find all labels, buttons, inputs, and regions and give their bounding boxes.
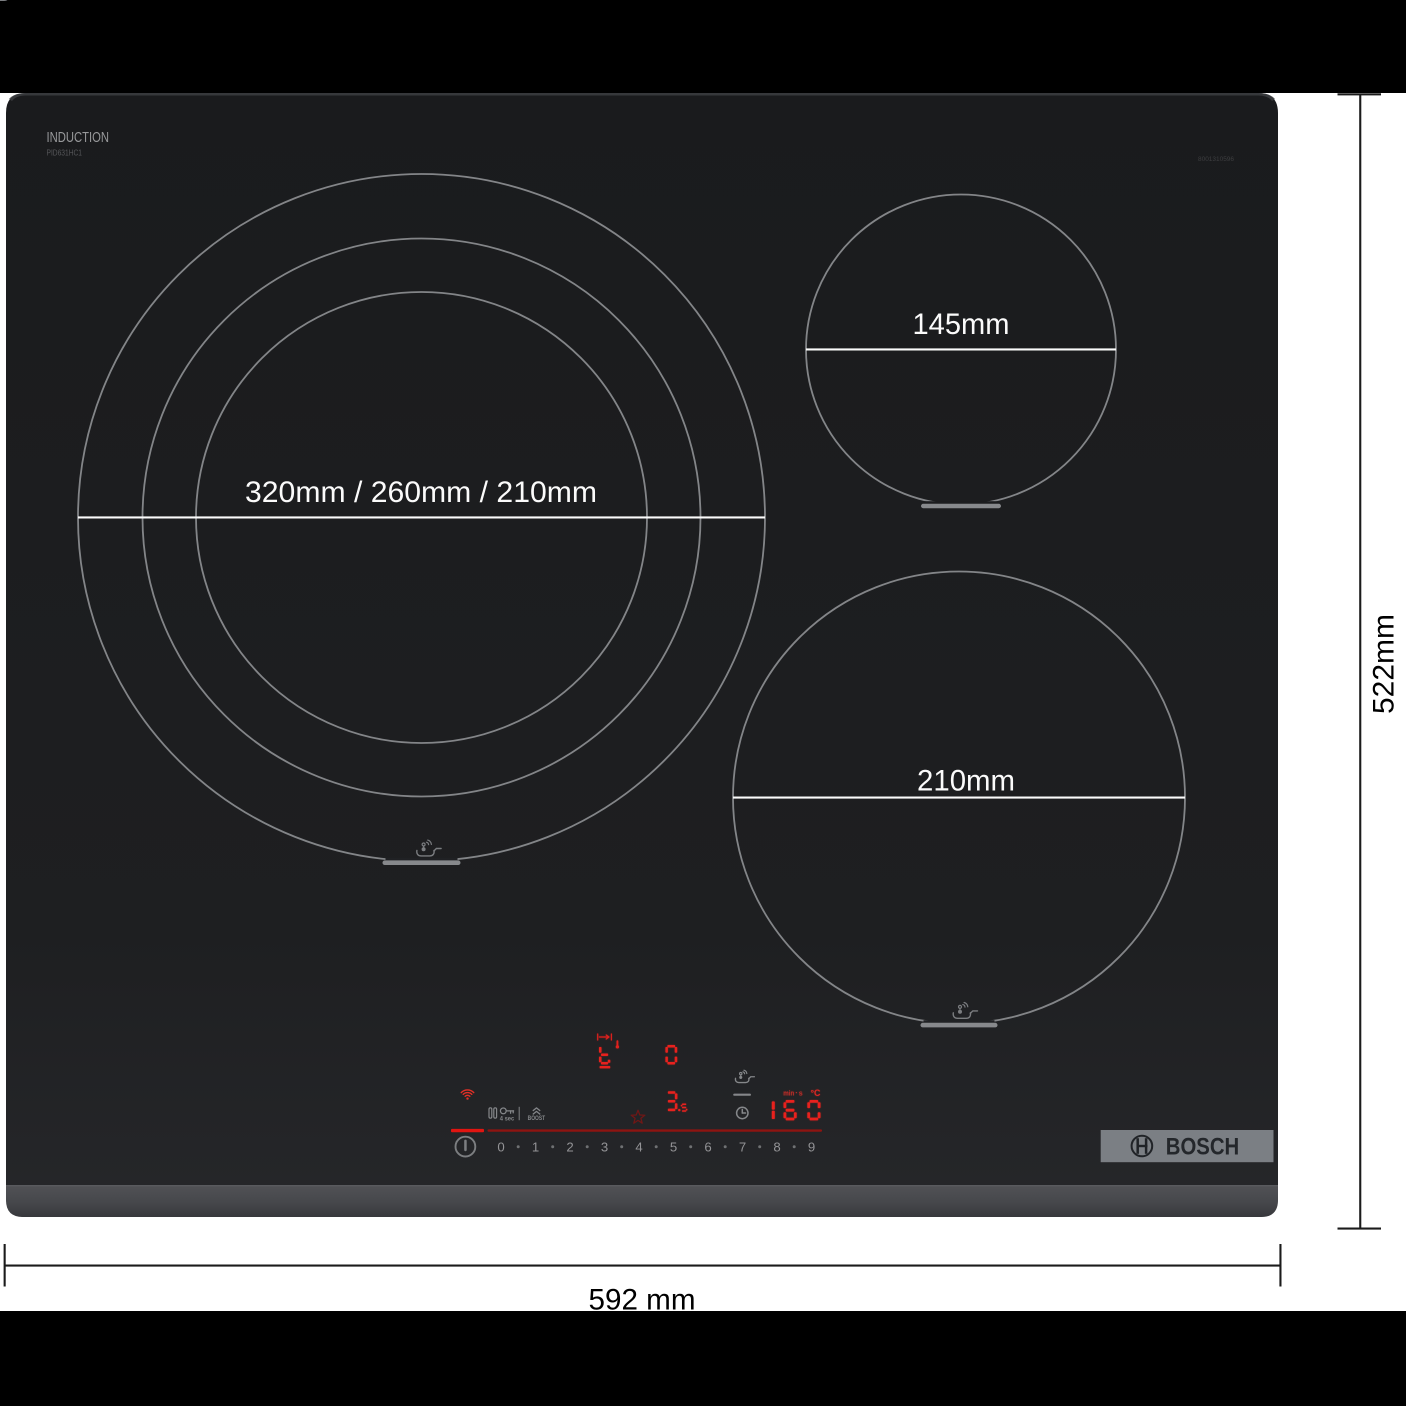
svg-text:1: 1 xyxy=(532,1139,539,1154)
svg-text:9: 9 xyxy=(808,1139,815,1154)
svg-text:592 mm: 592 mm xyxy=(589,1284,696,1317)
svg-text:3: 3 xyxy=(601,1139,608,1154)
svg-text:145mm: 145mm xyxy=(913,308,1010,341)
svg-text:4: 4 xyxy=(635,1139,642,1154)
svg-text:BOSCH: BOSCH xyxy=(1166,1134,1240,1161)
svg-text:8001310596: 8001310596 xyxy=(1198,156,1234,163)
svg-text:320mm / 260mm / 210mm: 320mm / 260mm / 210mm xyxy=(245,476,597,509)
svg-text:7: 7 xyxy=(739,1139,746,1154)
svg-text:8: 8 xyxy=(773,1139,780,1154)
svg-text:INDUCTION: INDUCTION xyxy=(47,129,110,146)
svg-text:PID631HC1: PID631HC1 xyxy=(47,149,83,158)
svg-text:210mm: 210mm xyxy=(917,765,1015,798)
svg-text:6: 6 xyxy=(704,1139,711,1154)
svg-text:BOOST: BOOST xyxy=(528,1115,546,1122)
svg-text:2: 2 xyxy=(566,1139,573,1154)
svg-text:4 sec: 4 sec xyxy=(500,1116,515,1123)
svg-text:522mm: 522mm xyxy=(1368,614,1401,714)
svg-text:5: 5 xyxy=(670,1139,677,1154)
svg-text:0: 0 xyxy=(497,1139,504,1154)
